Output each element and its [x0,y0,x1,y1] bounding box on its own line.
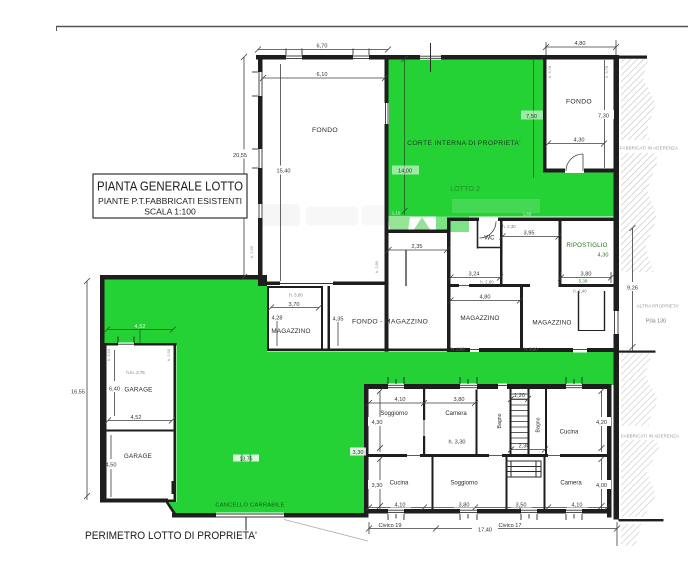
svg-text:Soggiorno: Soggiorno [450,481,478,487]
svg-text:h. 3,30: h. 3,30 [448,440,465,446]
svg-text:4,50: 4,50 [106,463,117,469]
svg-text:7,50: 7,50 [526,114,537,120]
svg-text:6,40: 6,40 [109,387,120,393]
svg-text:h. 2,95: h. 2,95 [451,347,465,352]
svg-text:CORTE INTERNA DI PROPRIETA': CORTE INTERNA DI PROPRIETA' [407,140,521,147]
svg-text:h. 2,55: h. 2,55 [249,245,254,258]
svg-text:FONDO: FONDO [312,127,338,134]
svg-text:h. 3,20: h. 3,20 [524,347,538,352]
svg-text:3,50: 3,50 [516,503,527,509]
svg-text:GARAGE: GARAGE [124,453,152,460]
svg-text:1,20: 1,20 [514,393,525,399]
svg-text:3,80: 3,80 [581,272,592,278]
svg-text:h. 2,90: h. 2,90 [166,348,171,361]
svg-text:4,20: 4,20 [596,420,607,426]
svg-text:6,70: 6,70 [317,44,328,50]
svg-text:Camera: Camera [445,411,467,417]
svg-text:h. 3,00: h. 3,00 [289,293,303,298]
svg-text:SCALA 1:100: SCALA 1:100 [144,207,196,217]
svg-text:3,80: 3,80 [459,503,470,509]
svg-text:2,30: 2,30 [519,444,530,450]
svg-text:CANCELLO CARRABILE: CANCELLO CARRABILE [215,503,284,509]
svg-text:h.m. 2,75: h.m. 2,75 [126,370,145,375]
svg-text:FONDO: FONDO [566,99,592,106]
svg-text:Civico 19: Civico 19 [378,523,401,529]
svg-text:3,80: 3,80 [454,397,465,403]
svg-text:h. 2,40: h. 2,40 [573,289,587,294]
svg-text:Camera: Camera [560,481,582,487]
svg-text:h. 3,78: h. 3,78 [604,65,609,78]
svg-text:1,10: 1,10 [392,211,401,216]
svg-text:4,10: 4,10 [395,503,406,509]
svg-text:4,10: 4,10 [395,397,406,403]
svg-text:14,00: 14,00 [398,169,412,175]
svg-text:16,55: 16,55 [71,390,85,396]
svg-text:MAGAZZINO: MAGAZZINO [271,328,310,335]
svg-text:3,30: 3,30 [372,483,383,489]
svg-text:3,95: 3,95 [524,231,535,237]
svg-text:RIPOSTIGLIO: RIPOSTIGLIO [566,242,607,249]
svg-text:Bagno: Bagno [536,417,542,432]
svg-text:Cucina: Cucina [390,481,409,487]
svg-text:LOTTO 2: LOTTO 2 [450,184,480,193]
svg-text:PIANTA GENERALE LOTTO: PIANTA GENERALE LOTTO [97,180,243,194]
svg-text:PIANTE P.T.FABBRICATI ESISTENT: PIANTE P.T.FABBRICATI ESISTENTI [98,196,242,206]
svg-text:4,80: 4,80 [575,41,586,47]
svg-text:4,30: 4,30 [372,420,383,426]
svg-text:MAGAZZINO: MAGAZZINO [460,315,499,322]
svg-text:4,10: 4,10 [572,503,583,509]
svg-text:Civico 17: Civico 17 [498,523,521,529]
svg-text:6,10: 6,10 [317,72,328,78]
svg-text:P.lla 130: P.lla 130 [646,319,666,325]
svg-text:4,00: 4,00 [596,483,607,489]
svg-text:GARAGE: GARAGE [124,387,152,394]
svg-text:h. 3,78: h. 3,78 [547,65,552,78]
svg-text:2,35: 2,35 [412,244,423,250]
svg-text:h. 3,50: h. 3,50 [106,348,111,361]
svg-text:3,70: 3,70 [289,302,300,308]
svg-text:5,38: 5,38 [579,279,588,284]
svg-text:h. 2,30: h. 2,30 [502,224,516,229]
svg-text:4,35: 4,35 [333,317,344,323]
svg-text:MAGAZZINO: MAGAZZINO [532,320,571,327]
svg-text:4,28: 4,28 [272,316,283,322]
svg-text:9,26: 9,26 [627,286,638,292]
svg-text:3,30: 3,30 [353,450,364,456]
svg-text:4,52: 4,52 [135,324,146,330]
svg-text:WC: WC [484,235,495,242]
svg-text:3,24: 3,24 [469,272,480,278]
svg-text:15,40: 15,40 [277,169,291,175]
svg-text:13,75: 13,75 [240,457,253,463]
svg-text:FONDO - MAGAZZINO: FONDO - MAGAZZINO [352,319,428,326]
svg-text:4,30: 4,30 [574,138,585,144]
svg-text:20,55: 20,55 [233,153,247,159]
svg-text:PERIMETRO LOTTO DI PROPRIETA': PERIMETRO LOTTO DI PROPRIETA' [85,530,257,542]
svg-text:Soggiorno: Soggiorno [380,411,408,417]
svg-text:FABBRICATI IN ADERENZA: FABBRICATI IN ADERENZA [620,146,678,151]
svg-text:ALTRA PROPRIETA': ALTRA PROPRIETA' [637,304,680,309]
svg-text:1,65: 1,65 [523,212,532,217]
svg-text:h. 2,85: h. 2,85 [374,260,379,273]
svg-text:Cucina: Cucina [560,430,579,436]
svg-text:Bagno: Bagno [497,413,503,428]
svg-text:4,52: 4,52 [131,415,142,421]
svg-text:FABBRICATI IN ADERENZA: FABBRICATI IN ADERENZA [621,434,679,439]
svg-text:4,30: 4,30 [598,253,609,259]
svg-text:4,80: 4,80 [480,295,491,301]
svg-text:h. 2,80: h. 2,80 [480,280,494,285]
svg-text:7,30: 7,30 [598,114,609,120]
svg-text:17,40: 17,40 [478,528,492,534]
